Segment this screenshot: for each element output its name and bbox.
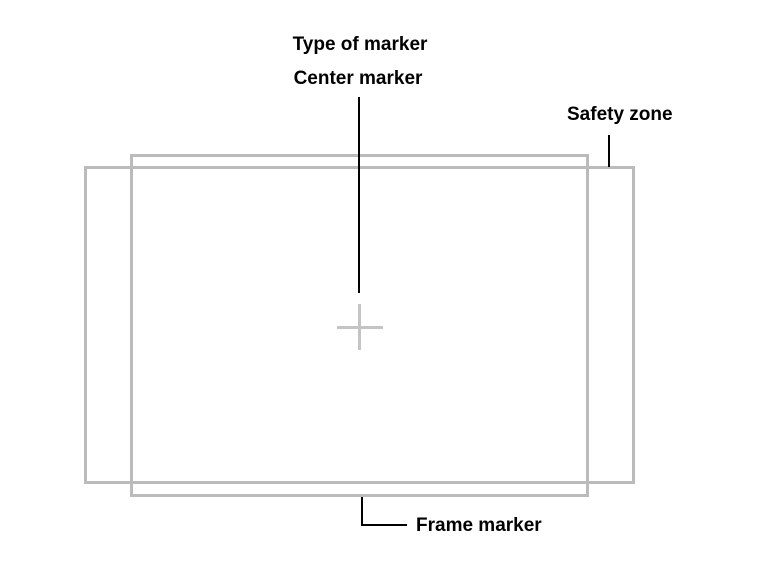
- frame-marker-leader-line-vertical: [361, 497, 363, 526]
- marker-types-diagram: Type of marker Center marker Safety zone…: [0, 0, 767, 579]
- center-marker-label: Center marker: [294, 68, 423, 90]
- center-cross-marker-icon: [358, 304, 361, 350]
- diagram-title: Type of marker: [293, 34, 428, 56]
- frame-marker-leader-line-horizontal: [361, 524, 407, 526]
- frame-marker-label: Frame marker: [416, 515, 542, 537]
- center-marker-leader-line: [358, 97, 360, 293]
- safety-zone-label: Safety zone: [567, 104, 673, 126]
- safety-zone-leader-line: [608, 135, 610, 167]
